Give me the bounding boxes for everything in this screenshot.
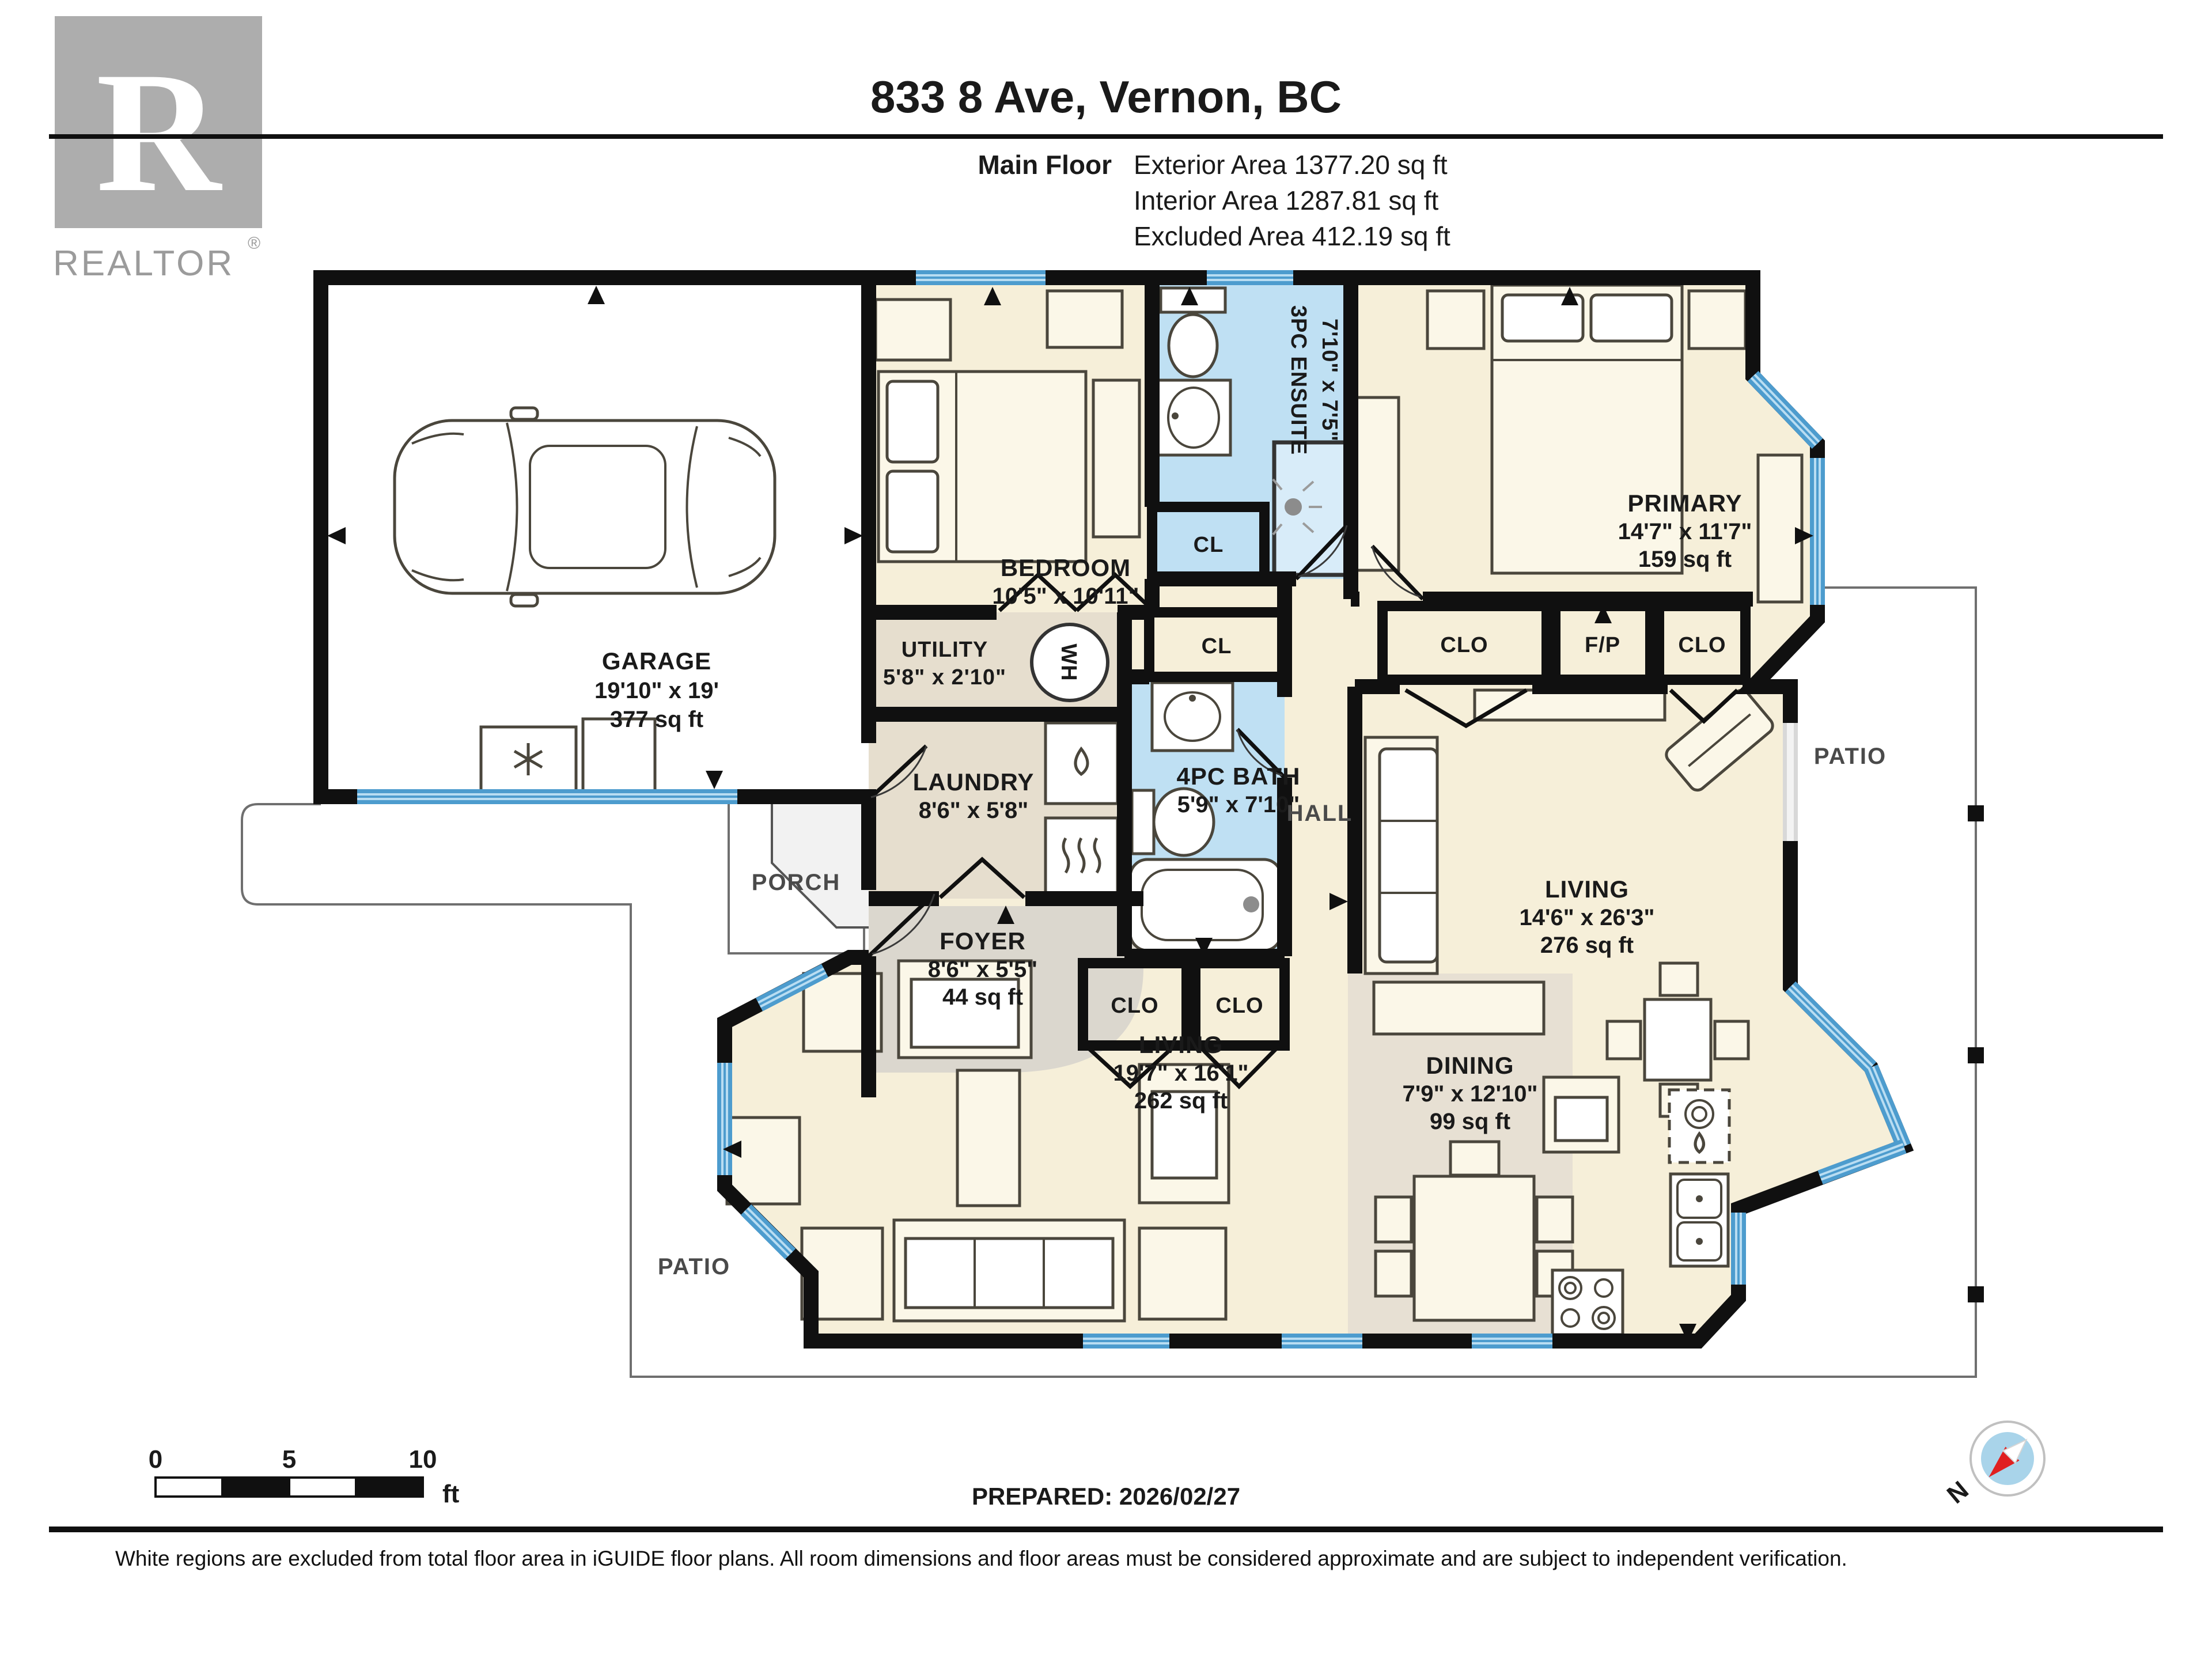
- closet-upper-label: CL: [1194, 533, 1224, 557]
- living-right-label: LIVING: [1545, 876, 1629, 903]
- patio-post: [1968, 1047, 1984, 1063]
- fireplace-label: F/P: [1585, 633, 1620, 657]
- scale-bar: 0 5 10 ft: [149, 1445, 460, 1508]
- closet-lower-label: CL: [1202, 634, 1232, 658]
- garage-area: 377 sq ft: [610, 707, 703, 732]
- side-table: [957, 1070, 1020, 1206]
- armchair-icon: [1544, 1077, 1619, 1152]
- footer: 0 5 10 ft PREPARED: 2026/02/27 N White r…: [49, 1422, 2163, 1570]
- living-right-dims: 14'6" x 26'3": [1520, 905, 1655, 930]
- laundry-dims: 8'6" x 5'8": [919, 798, 1028, 823]
- excluded-area: Excluded Area 412.19 sq ft: [1134, 221, 1450, 251]
- dresser: [1047, 291, 1122, 347]
- scale-unit: ft: [442, 1480, 460, 1508]
- scale-0: 0: [149, 1445, 162, 1474]
- bath-label: 4PC BATH: [1177, 763, 1301, 790]
- utility-label: UTILITY: [902, 638, 988, 662]
- garage-dims: 19'10" x 19': [594, 678, 719, 703]
- registered-mark-icon: ®: [248, 234, 260, 253]
- primary-dims: 14'7" x 11'7": [1618, 519, 1752, 544]
- bench: [1374, 982, 1544, 1034]
- realtor-logo-word: REALTOR: [53, 244, 234, 283]
- foyer-dims: 8'6" x 5'5": [928, 957, 1037, 982]
- dresser: [1355, 397, 1399, 570]
- ensuite-dims: 7'10" x 7'5": [1317, 319, 1342, 442]
- hall-label: HALL: [1287, 801, 1353, 826]
- sink-icon: [1152, 683, 1233, 751]
- patio-right-label: PATIO: [1814, 744, 1887, 769]
- garage-landing-step: [772, 801, 871, 927]
- patio-post: [1968, 805, 1984, 821]
- realtor-logo-r: R: [96, 36, 223, 228]
- freezer-icon: [481, 727, 576, 791]
- patio-left-label: PATIO: [658, 1254, 730, 1279]
- exterior-area: Exterior Area 1377.20 sq ft: [1134, 150, 1448, 180]
- sofa-icon: [1365, 737, 1437, 974]
- utility-dims: 5'8" x 2'10": [883, 665, 1006, 690]
- bath-dims: 5'9" x 7'10": [1177, 792, 1300, 817]
- sink-icon: [1157, 380, 1230, 455]
- living-right-area: 276 sq ft: [1540, 933, 1634, 958]
- floor-plan-page: R REALTOR ® 833 8 Ave, Vernon, BC Main F…: [0, 0, 2212, 1659]
- dryer-icon: [1046, 818, 1118, 896]
- dining-dims: 7'9" x 12'10": [1403, 1081, 1538, 1107]
- clo-primary-left-label: CLO: [1440, 633, 1488, 657]
- sofa-icon: [894, 1220, 1124, 1321]
- stove-icon: [1552, 1270, 1623, 1335]
- bedroom-dims: 10'5" x 10'11": [993, 584, 1139, 609]
- header: R REALTOR ® 833 8 Ave, Vernon, BC Main F…: [49, 16, 2163, 283]
- bed-icon: [878, 372, 1086, 562]
- bathtub-icon: [1130, 859, 1281, 950]
- wardrobe: [1093, 380, 1139, 537]
- nightstand: [876, 300, 950, 360]
- floor-label: Main Floor: [978, 150, 1112, 180]
- compass-icon: N: [1942, 1422, 2044, 1509]
- kitchen-sink-icon: [1671, 1174, 1728, 1266]
- interior-area: Interior Area 1287.81 sq ft: [1134, 185, 1439, 215]
- nightstand: [1689, 291, 1745, 349]
- nightstand: [1427, 291, 1484, 349]
- armchair: [1139, 1228, 1226, 1319]
- disclaimer-text: White regions are excluded from total fl…: [115, 1547, 1847, 1570]
- living-left-area: 262 sq ft: [1134, 1088, 1228, 1113]
- primary-area: 159 sq ft: [1638, 547, 1732, 572]
- bedroom-label: BEDROOM: [1001, 554, 1131, 581]
- shower-icon: [1273, 442, 1347, 575]
- foyer-area: 44 sq ft: [942, 984, 1023, 1010]
- living-left-dims: 19'7" x 16'1": [1113, 1060, 1249, 1086]
- dining-label: DINING: [1426, 1052, 1514, 1079]
- porch-label: PORCH: [752, 870, 840, 895]
- patio-post: [1968, 1286, 1984, 1302]
- washer-icon: [1046, 723, 1118, 804]
- clo-hall-right-label: CLO: [1215, 994, 1263, 1018]
- scale-10: 10: [409, 1445, 437, 1474]
- scale-5: 5: [282, 1445, 296, 1474]
- dining-area: 99 sq ft: [1430, 1109, 1510, 1134]
- svg-text:WH: WH: [1056, 643, 1081, 681]
- prepared-date: PREPARED: 2026/02/27: [972, 1483, 1240, 1510]
- compass-north-label: N: [1942, 1476, 1974, 1509]
- page-title: 833 8 Ave, Vernon, BC: [870, 71, 1342, 122]
- ensuite-label: 3PC ENSUITE: [1286, 305, 1310, 455]
- foyer-label: FOYER: [940, 927, 1026, 955]
- water-heater-icon: WH: [1032, 624, 1108, 700]
- clo-hall-left-label: CLO: [1111, 994, 1158, 1018]
- laundry-label: LAUNDRY: [913, 768, 1035, 796]
- primary-label: PRIMARY: [1627, 490, 1742, 517]
- clo-primary-right-label: CLO: [1678, 633, 1726, 657]
- car-icon: [395, 408, 775, 606]
- living-left-label: LIVING: [1139, 1031, 1223, 1058]
- kitchen-counter: [1669, 1090, 1729, 1162]
- garage-label: GARAGE: [602, 647, 711, 675]
